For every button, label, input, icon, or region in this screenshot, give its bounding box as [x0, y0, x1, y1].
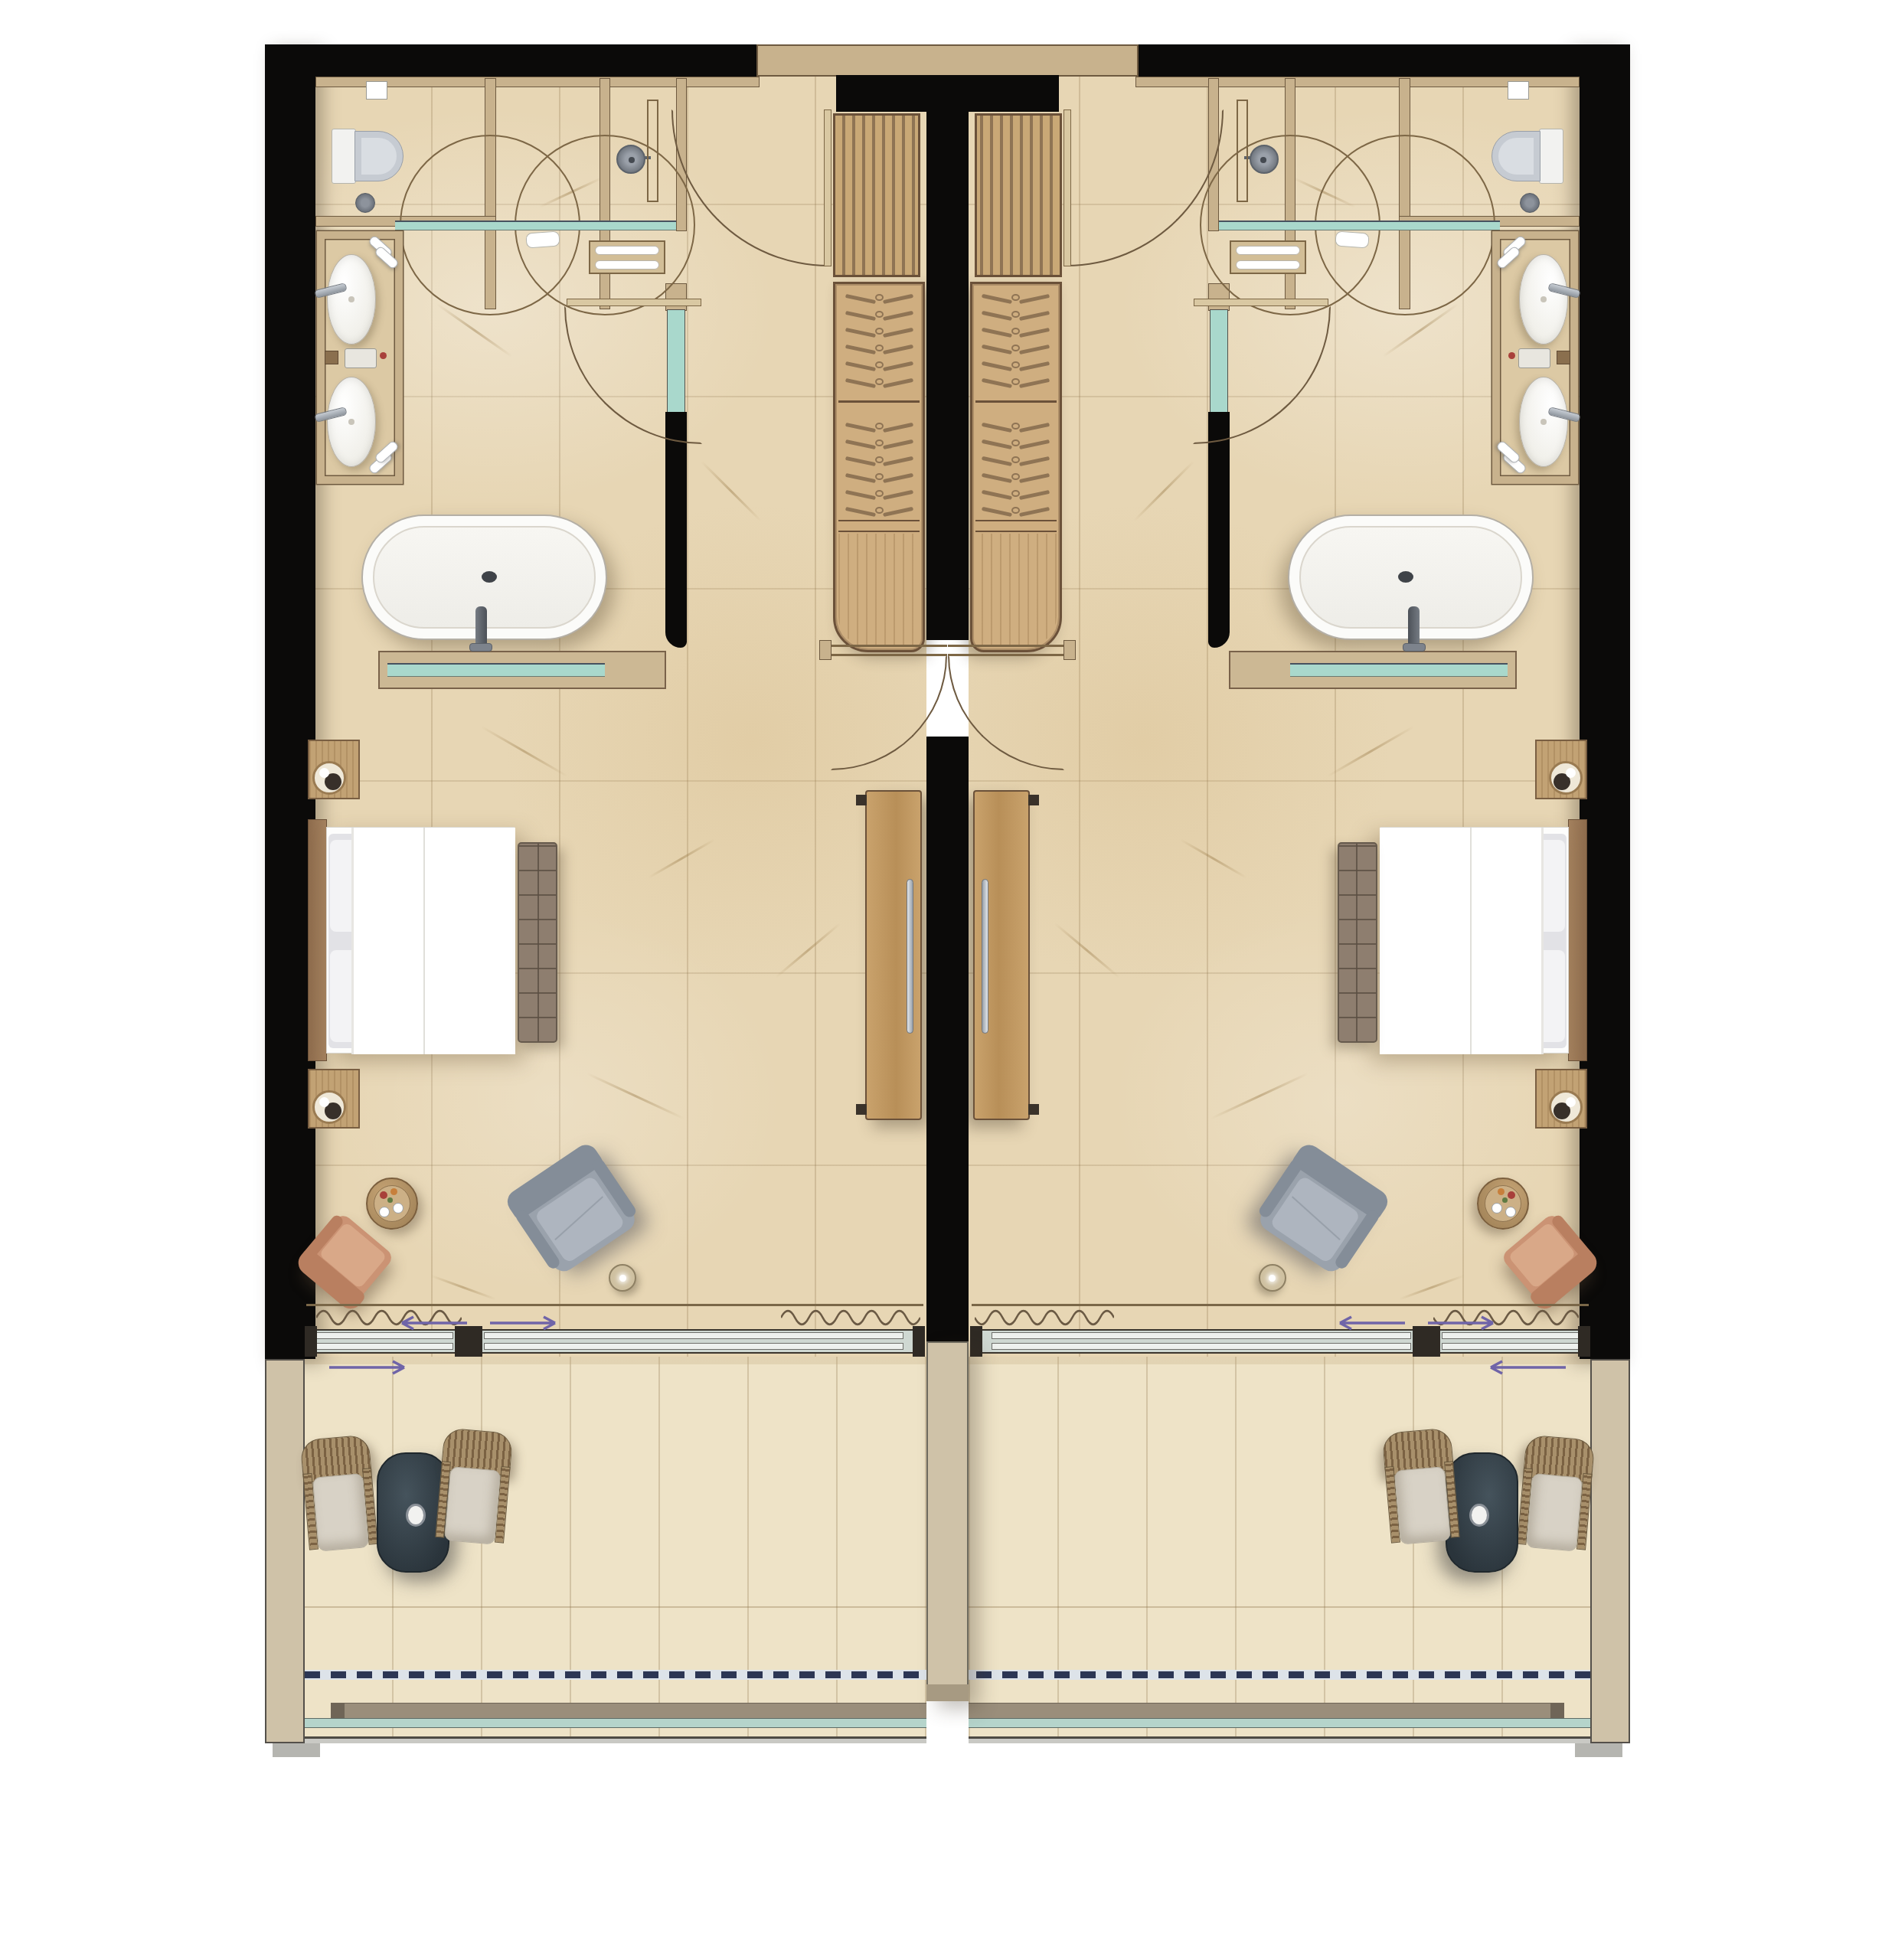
balcony-divider-wall	[926, 1341, 969, 1701]
party-wall-lower	[926, 737, 969, 1341]
entry-lintel	[756, 44, 1139, 77]
shared-center	[0, 0, 1895, 1960]
party-wall-upper	[926, 75, 969, 640]
floor-plan	[0, 0, 1895, 1960]
balcony-divider-cap	[926, 1684, 969, 1701]
